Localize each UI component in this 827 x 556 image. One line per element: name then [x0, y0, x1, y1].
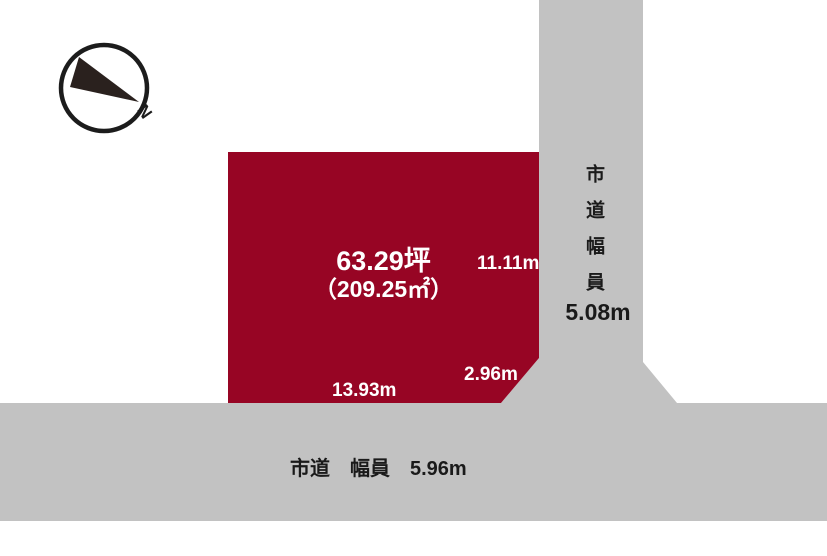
plot-dimension-corner: 2.96m: [464, 364, 518, 386]
land-plot-diagram: N 63.29坪 （209.25㎡） 11.11m 2.96m 13.93m 市…: [0, 0, 827, 556]
plot-area-sqm: （209.25㎡）: [228, 275, 539, 303]
plot-dimension-bottom: 13.93m: [332, 380, 396, 402]
road-right-width: 5.08m: [562, 299, 634, 326]
north-arrow-icon: [61, 45, 147, 131]
road-bottom-label: 市道 幅員 5.96m: [290, 452, 467, 481]
compass-needle: [70, 57, 139, 102]
plot-dimension-right: 11.11m: [477, 253, 539, 275]
road-right-name: 市道幅員: [580, 164, 607, 308]
